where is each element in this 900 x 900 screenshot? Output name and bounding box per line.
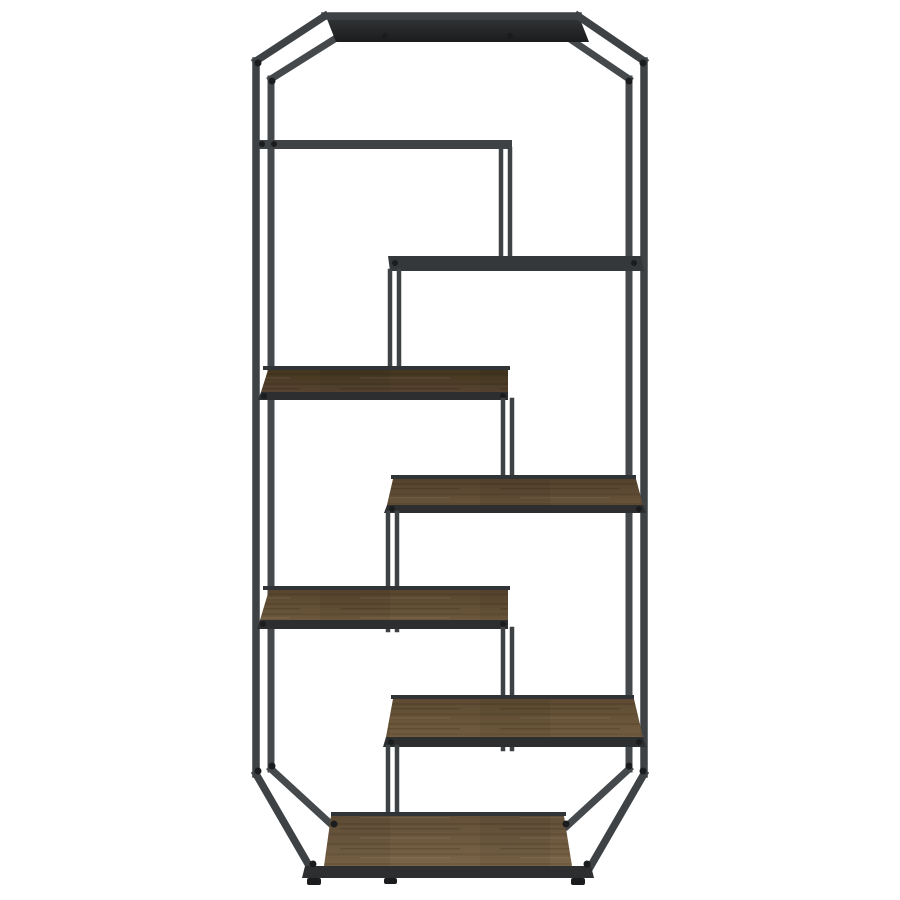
tier5-screw [500,621,506,627]
shelf-tier-1-bar [259,140,512,260]
bottom-foot [307,878,321,885]
bottom-foot [571,878,585,885]
frame-joint-screw [640,60,647,67]
tier2-screw [631,260,637,266]
tier4-wood-grain [387,479,643,505]
tier4-front-rail [384,505,646,513]
tier5-front-rail [257,620,508,629]
bottom-wood-grain [324,816,572,866]
bottom-screw [584,861,591,868]
tier5-screw [260,621,266,627]
tier2-connector [390,271,399,373]
tier6-front-rail [383,737,646,747]
tier3-wood-grain [261,370,508,392]
bottom-front-rail [302,866,594,878]
bottom-screw [563,821,570,828]
frame-joint-screw [640,768,647,775]
tier6-wood-grain [386,699,643,737]
top-panel-underside [327,19,589,42]
shelf-tier-2 [388,256,644,373]
bottom-shelf [302,814,594,885]
frame-joint-screw [255,768,262,775]
tier3-screw [261,393,267,399]
top-shelf-panel [327,19,589,42]
tier1-bar [259,140,512,149]
tier5-wood-grain [260,590,508,620]
bottom-screw [331,821,338,828]
tier1-connector [501,149,510,260]
bottom-foot [384,878,397,884]
tier1-screw [259,141,265,147]
product-photo-canvas [0,0,900,900]
frame-joint-screw [626,763,633,770]
tier3-front-rail [258,392,508,400]
bottom-screw [310,861,317,868]
bookcase-product-image [0,0,900,900]
frame-joint-screw [269,78,276,85]
frame-joint-screw [255,60,262,67]
top-panel-screw [507,33,513,39]
frame-joint-screw [269,763,276,770]
tier6-screw [636,739,642,745]
tier2-shelf-edge [388,256,644,271]
tier6-screw [388,739,394,745]
tier1-screw [271,141,277,147]
frame-joint-screw [626,78,633,85]
tier4-screw [636,506,642,512]
top-panel-screw [382,33,388,39]
tier2-screw [392,260,398,266]
